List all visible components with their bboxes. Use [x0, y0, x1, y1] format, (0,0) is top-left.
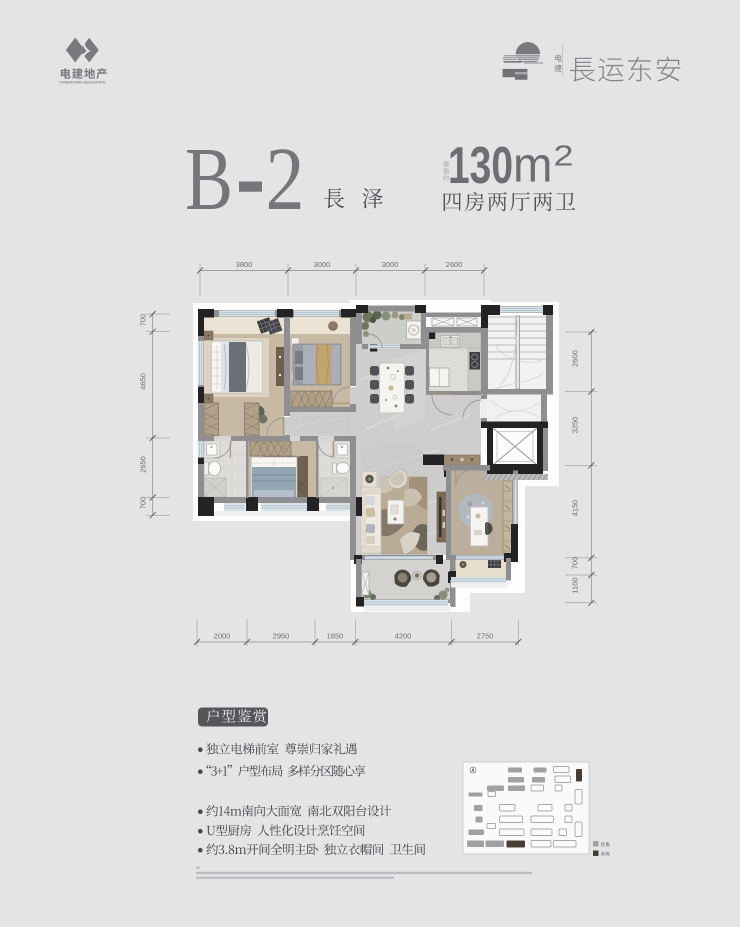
- svg-text:2750: 2750: [477, 632, 494, 641]
- svg-text:2: 2: [554, 141, 574, 173]
- svg-text:3800: 3800: [236, 260, 253, 269]
- svg-text:05: 05: [196, 866, 200, 870]
- svg-text:2950: 2950: [273, 632, 290, 641]
- svg-text:700: 700: [139, 314, 148, 327]
- svg-text:2600: 2600: [446, 260, 463, 269]
- svg-text:130: 130: [448, 136, 513, 194]
- svg-text:POWERCHINA REALESTATE: POWERCHINA REALESTATE: [60, 81, 106, 85]
- svg-text:2000: 2000: [214, 632, 231, 641]
- svg-text:1100: 1100: [571, 577, 580, 593]
- svg-text:4200: 4200: [395, 632, 412, 641]
- svg-text:2: 2: [266, 130, 305, 229]
- svg-text:700: 700: [571, 557, 580, 570]
- svg-text:m: m: [513, 139, 553, 193]
- svg-text:3000: 3000: [314, 260, 331, 269]
- svg-text:2650: 2650: [139, 456, 148, 473]
- svg-text:700: 700: [139, 497, 148, 510]
- svg-text:3000: 3000: [382, 260, 399, 269]
- svg-text:1850: 1850: [327, 632, 344, 641]
- svg-text:4650: 4650: [139, 373, 148, 390]
- svg-text:3250: 3250: [571, 417, 580, 434]
- svg-text:B: B: [185, 130, 233, 229]
- svg-text:2600: 2600: [571, 350, 580, 367]
- svg-text:4150: 4150: [571, 500, 580, 517]
